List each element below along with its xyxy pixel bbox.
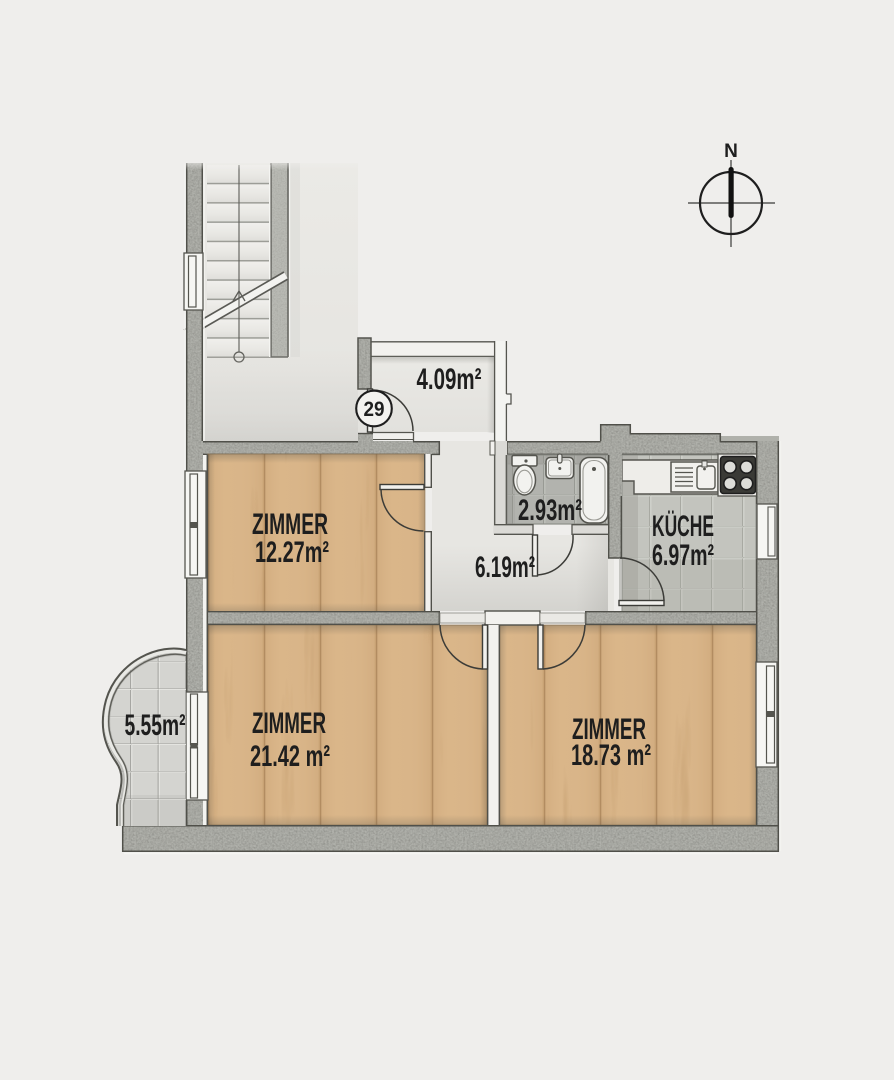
svg-text:18.73 m²: 18.73 m² [571, 739, 651, 772]
svg-text:6.19m²: 6.19m² [475, 551, 535, 584]
svg-text:21.42 m²: 21.42 m² [250, 740, 330, 773]
svg-text:ZIMMER: ZIMMER [252, 707, 326, 740]
svg-text:6.97m²: 6.97m² [652, 539, 714, 572]
svg-text:12.27m²: 12.27m² [255, 536, 329, 569]
svg-text:N: N [724, 141, 738, 162]
svg-text:29: 29 [364, 398, 385, 421]
svg-text:4.09m²: 4.09m² [417, 363, 482, 396]
svg-text:5.55m²: 5.55m² [125, 709, 186, 742]
svg-text:2.93m²: 2.93m² [518, 494, 582, 527]
